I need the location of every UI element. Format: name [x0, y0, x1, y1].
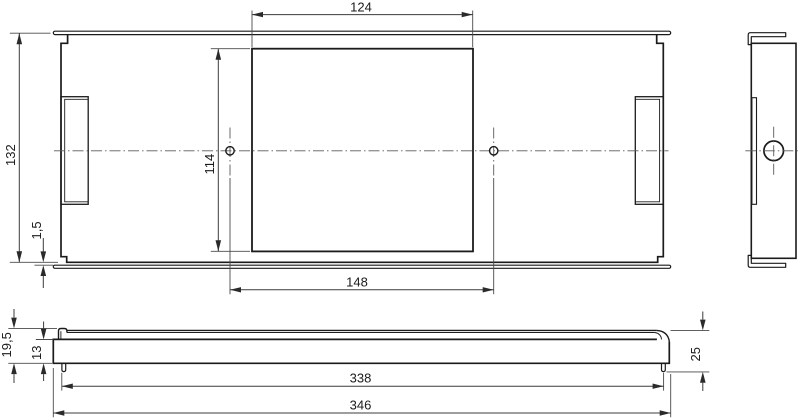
arrowhead	[17, 33, 23, 44]
profile-left-hook	[59, 329, 67, 340]
arrowhead	[252, 12, 263, 17]
dim-label-114: 114	[202, 154, 217, 175]
arrowhead	[41, 265, 47, 276]
arrowhead	[11, 318, 17, 329]
arrowhead	[41, 329, 47, 340]
arrowhead	[230, 287, 241, 292]
arrowhead	[653, 384, 664, 389]
arrowhead	[11, 363, 17, 374]
arrowhead	[462, 12, 473, 17]
dim-hole-spacing: 148	[230, 178, 494, 294]
profile-left-stub	[62, 363, 66, 371]
side-bottom-hook	[748, 255, 786, 267]
dim-side-depth: 25	[667, 312, 710, 392]
profile-bar-outline	[53, 339, 669, 363]
arrowhead	[17, 251, 23, 262]
side-view	[745, 33, 798, 268]
front-top-edge-strip	[53, 31, 670, 34]
dim-label-346: 346	[350, 397, 372, 412]
profile-right-curl	[657, 330, 670, 341]
technical-drawing-canvas: 124 132 114 148 1,5	[0, 0, 800, 418]
arrowhead	[700, 320, 706, 331]
arrowhead	[41, 251, 47, 262]
arrowhead	[53, 410, 64, 415]
arrowhead	[700, 372, 706, 383]
front-body-outline	[61, 35, 663, 262]
dim-label-124: 124	[350, 0, 372, 14]
dim-inner-length: 338	[62, 371, 664, 391]
dim-label-19-5: 19,5	[0, 332, 14, 357]
dim-label-25: 25	[688, 347, 703, 361]
arrowhead	[41, 363, 47, 374]
dim-label-13: 13	[29, 346, 44, 360]
dim-label-148: 148	[346, 274, 368, 289]
arrowhead	[216, 240, 222, 251]
dim-bottom-edge-offset: 1,5	[29, 221, 53, 288]
dim-label-1-5: 1,5	[29, 221, 44, 239]
dim-label-338: 338	[350, 371, 372, 386]
dim-label-132: 132	[3, 144, 18, 166]
arrowhead	[483, 287, 494, 292]
front-view	[53, 31, 670, 268]
front-bottom-edge-strip	[53, 265, 670, 268]
dim-opening-width: 124	[252, 0, 473, 47]
profile-right-curl-inner	[655, 333, 662, 340]
front-cutout-opening	[252, 49, 473, 252]
dim-profile-body-height: 13	[29, 322, 54, 382]
profile-right-stub	[662, 363, 666, 371]
arrowhead	[62, 384, 73, 389]
technical-drawing-page: 124 132 114 148 1,5	[0, 0, 800, 418]
arrowhead	[660, 410, 671, 415]
bottom-profile-view	[53, 329, 669, 372]
arrowhead	[216, 49, 222, 60]
